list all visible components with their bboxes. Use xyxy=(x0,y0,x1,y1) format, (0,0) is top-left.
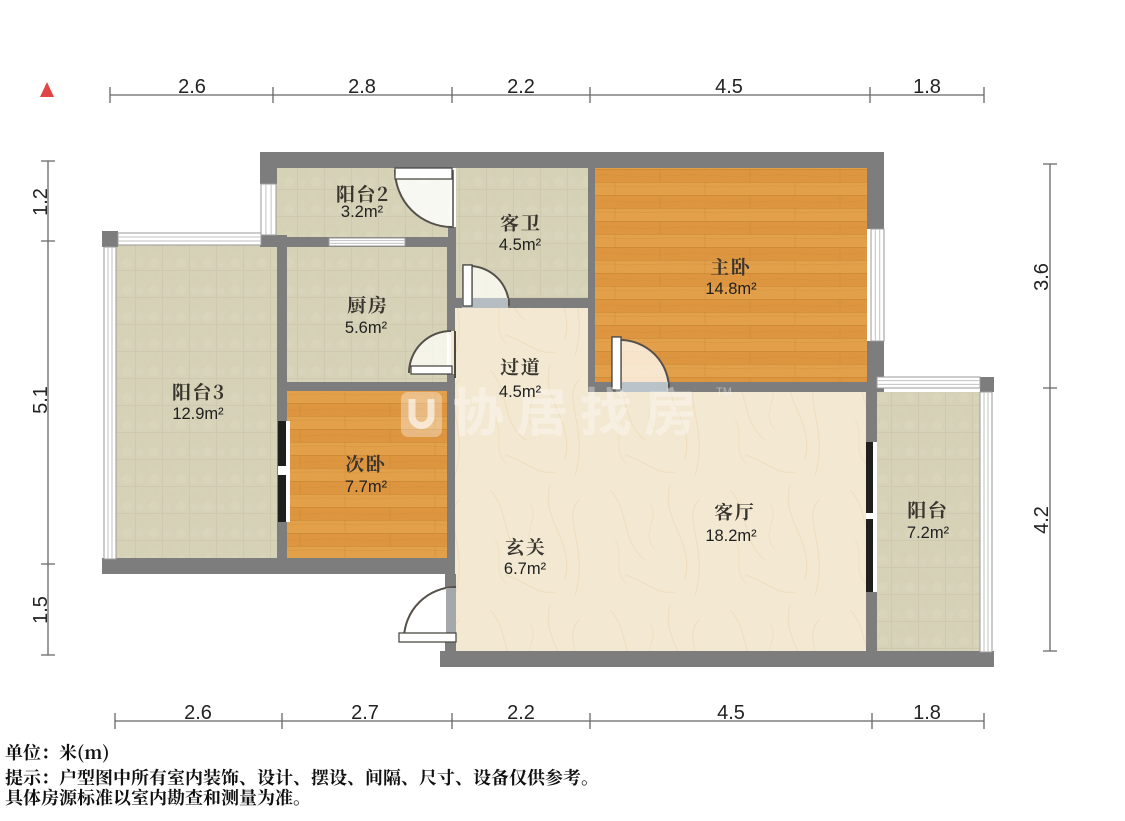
svg-text:4.2: 4.2 xyxy=(1031,506,1053,534)
svg-text:7.7m²: 7.7m² xyxy=(345,478,388,496)
svg-text:3.2m²: 3.2m² xyxy=(341,203,384,221)
svg-text:5.6m²: 5.6m² xyxy=(345,319,388,337)
svg-text:7.2m²: 7.2m² xyxy=(907,524,950,542)
svg-text:2.7: 2.7 xyxy=(351,702,379,724)
svg-text:12.9m²: 12.9m² xyxy=(172,405,224,423)
svg-text:1.8: 1.8 xyxy=(913,76,941,98)
svg-text:1.5: 1.5 xyxy=(30,596,52,624)
svg-text:18.2m²: 18.2m² xyxy=(705,527,757,545)
svg-text:TM: TM xyxy=(716,386,732,398)
svg-text:3.6: 3.6 xyxy=(1031,263,1053,291)
svg-text:4.5: 4.5 xyxy=(717,702,745,724)
svg-text:4.5m²: 4.5m² xyxy=(499,236,542,254)
svg-text:1.2: 1.2 xyxy=(30,188,52,216)
svg-text:2.8: 2.8 xyxy=(348,76,376,98)
svg-text:2.2: 2.2 xyxy=(507,76,535,98)
svg-text:6.7m²: 6.7m² xyxy=(504,560,547,578)
svg-text:5.1: 5.1 xyxy=(30,386,52,414)
svg-text:2.6: 2.6 xyxy=(184,702,212,724)
svg-text:1.8: 1.8 xyxy=(913,702,941,724)
svg-text:14.8m²: 14.8m² xyxy=(705,280,757,298)
svg-text:4.5: 4.5 xyxy=(715,76,743,98)
svg-text:4.5m²: 4.5m² xyxy=(499,383,542,401)
svg-text:2.6: 2.6 xyxy=(178,76,206,98)
svg-text:2.2: 2.2 xyxy=(507,702,535,724)
